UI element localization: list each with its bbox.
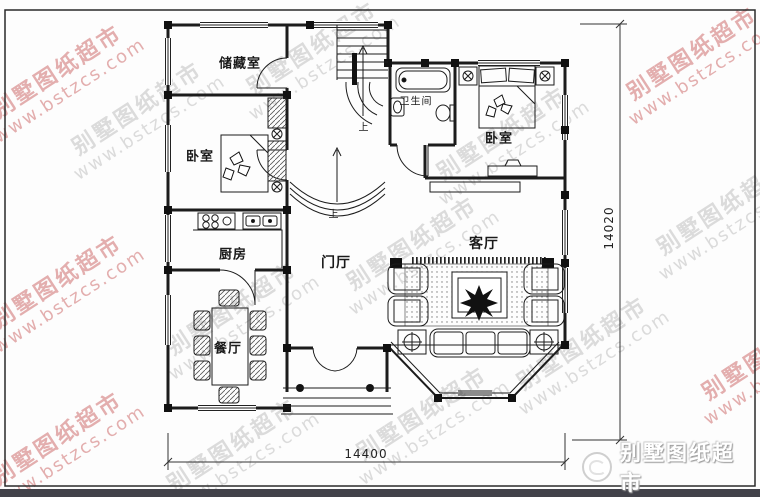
living-room-furniture (388, 257, 564, 357)
bed-icon (479, 66, 535, 128)
logo-icon (582, 452, 612, 482)
steps-up-label: 上 (329, 206, 340, 221)
room-label-storage: 储藏室 (219, 53, 261, 72)
room-label-bedroom-left: 卧室 (186, 146, 214, 165)
logo-text: 别墅图纸超市 (620, 437, 754, 497)
sink-icon (243, 213, 281, 229)
desk-icon (488, 166, 537, 176)
bay-window (387, 342, 563, 398)
storage-door-icon (257, 58, 287, 88)
sofa-icon (430, 329, 530, 357)
room-label-kitchen: 厨房 (219, 244, 247, 263)
wardrobe-icon (268, 98, 286, 128)
bedroom-right-furniture (459, 66, 554, 176)
room-label-dining: 餐厅 (214, 338, 242, 357)
floor-plan-drawing (0, 0, 760, 497)
stairs (337, 25, 388, 124)
tv-wall-icon (412, 257, 548, 264)
site-logo: 别墅图纸超市 (582, 448, 754, 486)
room-label-foyer: 门厅 (321, 252, 351, 272)
dimension-width-label: 14400 (344, 447, 387, 461)
stairs-up-label: 上 (359, 119, 370, 134)
room-label-bedroom-right: 卧室 (485, 128, 513, 147)
entrance-porch (281, 348, 393, 414)
room-label-bathroom: 卫生间 (400, 93, 433, 108)
bedroom-left-furniture (221, 98, 286, 192)
dimension-height-label: 14020 (602, 206, 616, 249)
closet-icon (430, 182, 520, 192)
foyer-arrow-icon (333, 148, 341, 202)
floor-plan-page: 别墅图纸超市www.bstzcs.com 别墅图纸超市www.bstzcs.co… (0, 0, 760, 497)
main-door-icon (313, 348, 357, 371)
stairs-arrow-icon (359, 46, 367, 116)
bathroom-door-icon (397, 145, 428, 176)
room-label-living: 客厅 (469, 233, 499, 253)
page-border (5, 10, 755, 486)
toilet-icon (436, 105, 450, 121)
